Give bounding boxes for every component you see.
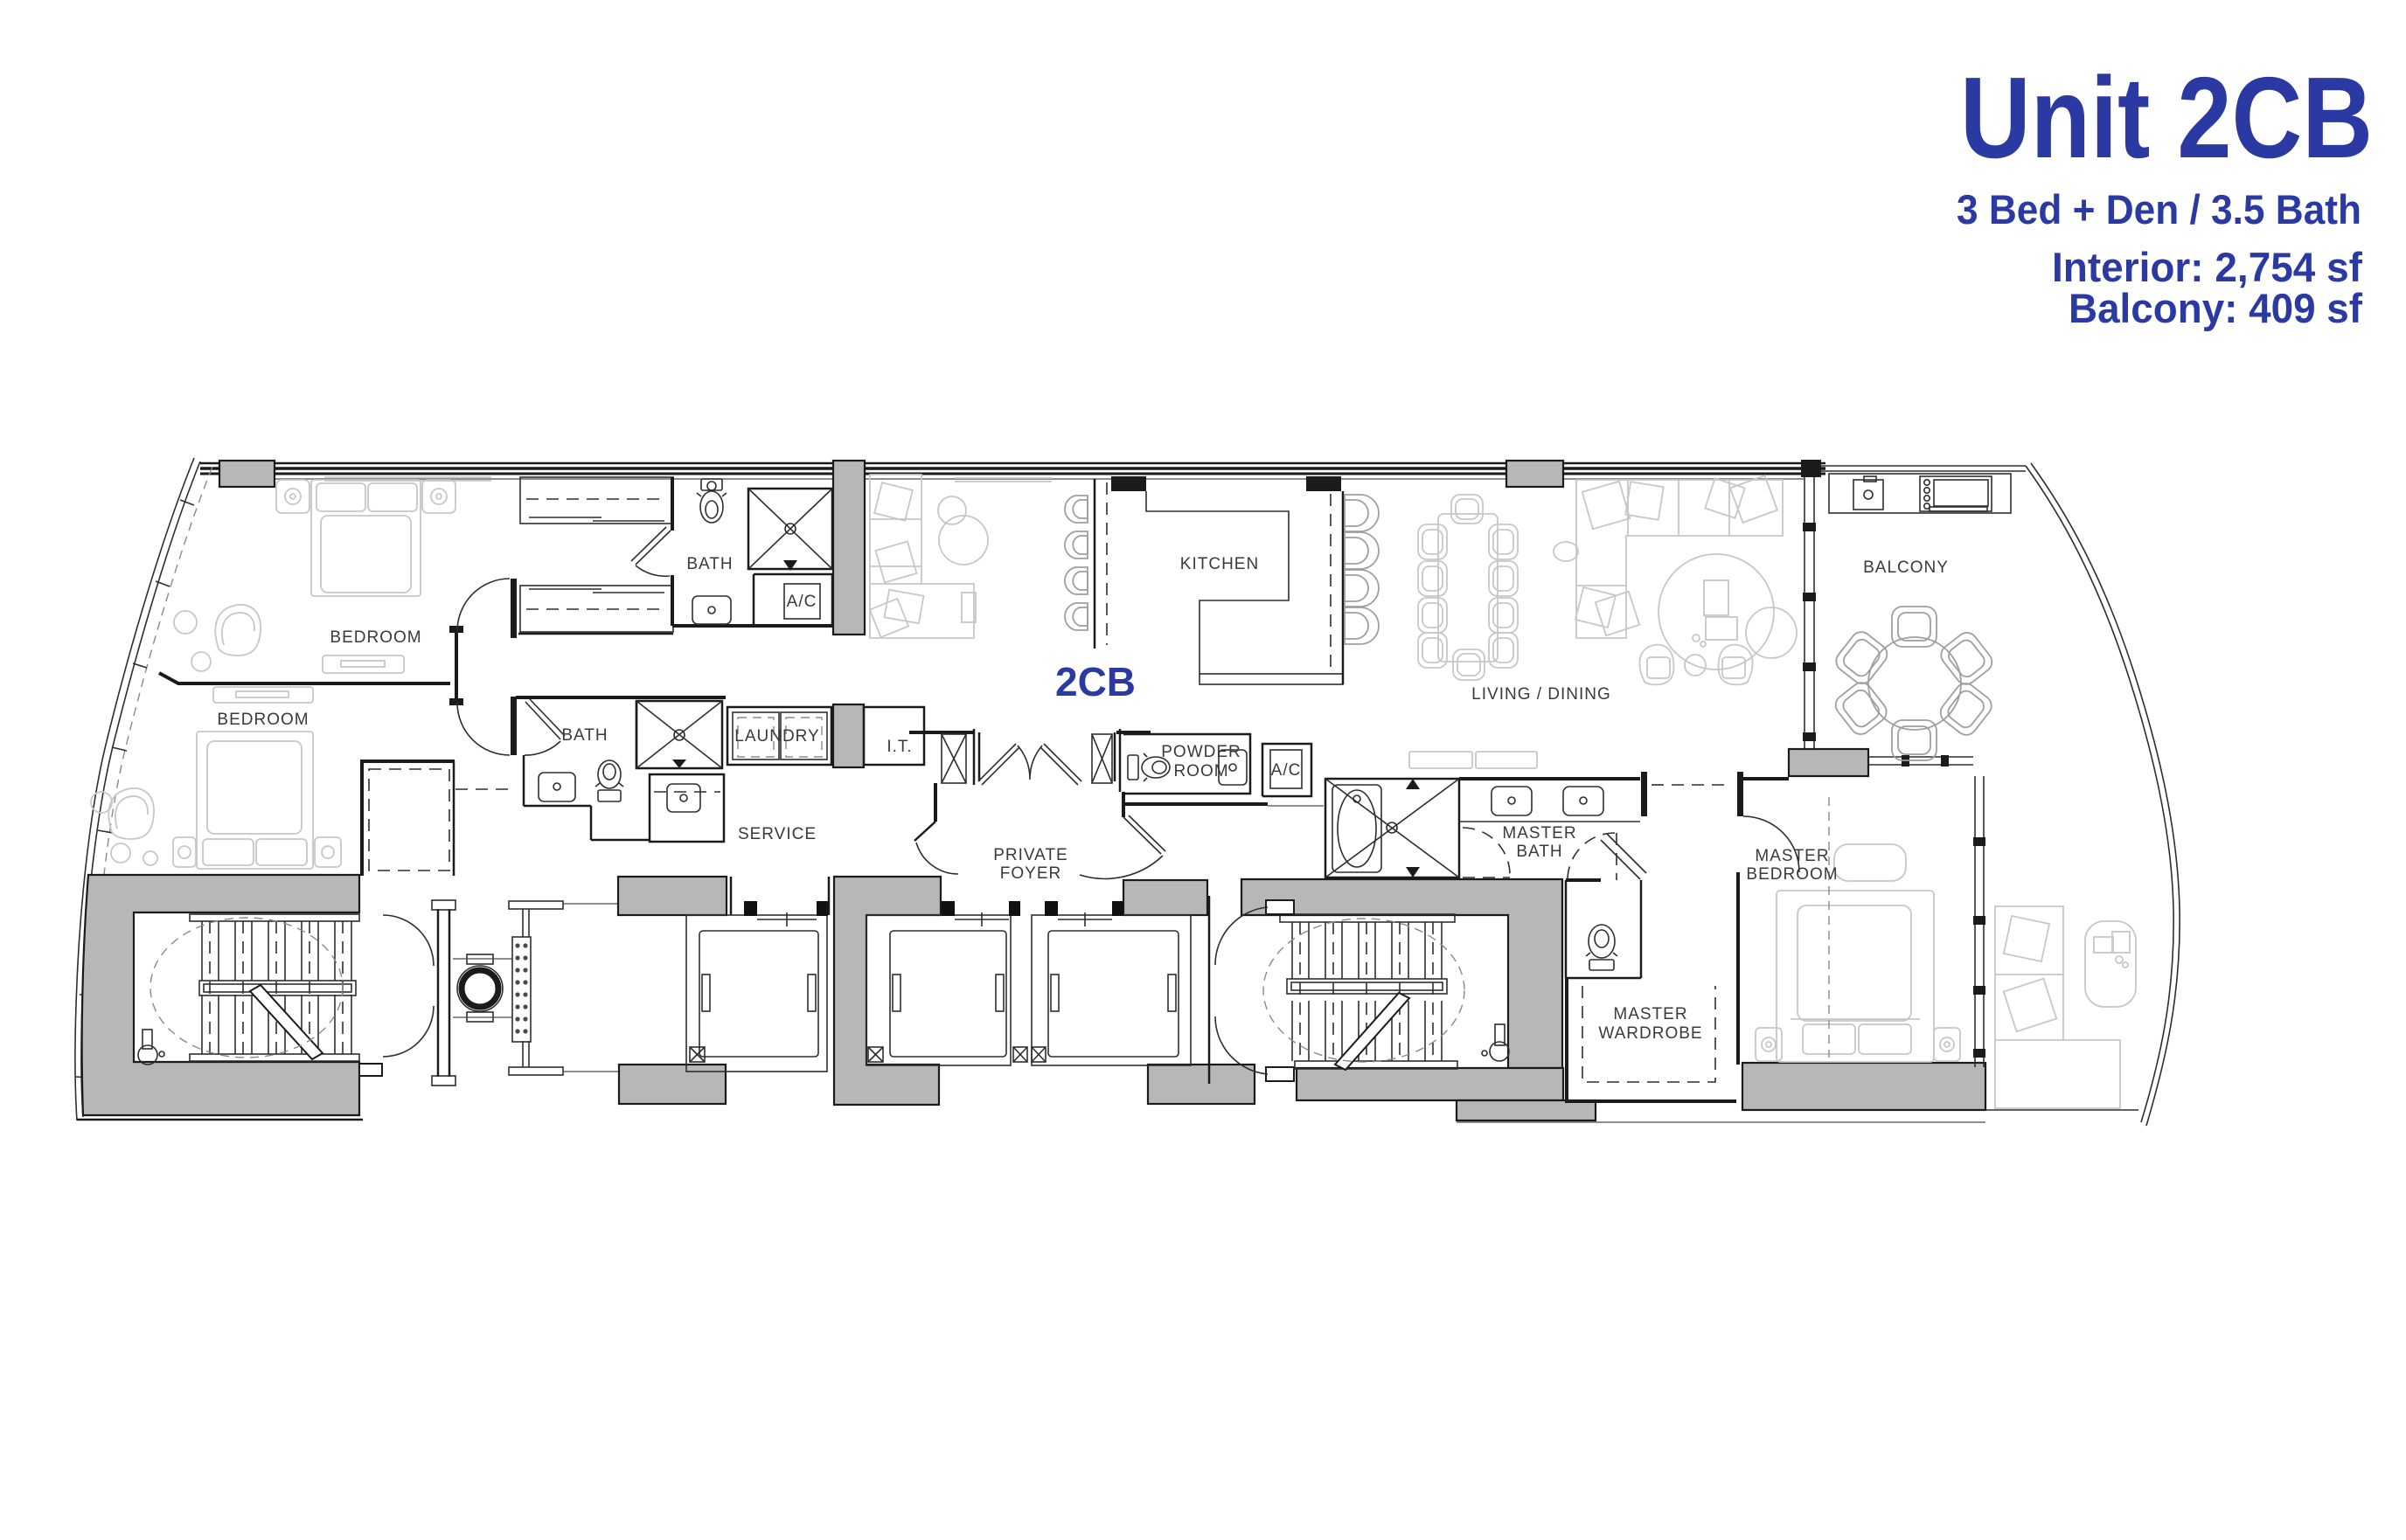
svg-text:BATH: BATH (686, 555, 733, 573)
svg-text:POWDER: POWDER (1161, 743, 1241, 761)
svg-text:Unit 2CB: Unit 2CB (1960, 53, 2373, 182)
svg-text:LIVING / DINING: LIVING / DINING (1471, 685, 1611, 704)
svg-text:Balcony: 409 sf: Balcony: 409 sf (2069, 285, 2362, 331)
svg-text:KITCHEN: KITCHEN (1180, 555, 1259, 573)
svg-text:BEDROOM: BEDROOM (1746, 865, 1838, 884)
svg-text:A/C: A/C (1271, 761, 1302, 780)
svg-text:MASTER: MASTER (1613, 1005, 1687, 1023)
svg-text:Interior: 2,754 sf: Interior: 2,754 sf (2052, 244, 2362, 290)
svg-text:BEDROOM: BEDROOM (217, 711, 309, 729)
svg-text:2CB: 2CB (1055, 659, 1136, 704)
svg-text:BEDROOM: BEDROOM (330, 628, 421, 647)
svg-text:ROOM: ROOM (1173, 762, 1228, 780)
svg-text:3 Bed + Den / 3.5 Bath: 3 Bed + Den / 3.5 Bath (1957, 186, 2361, 232)
svg-text:BALCONY: BALCONY (1863, 558, 1949, 577)
svg-text:BATH: BATH (561, 726, 608, 745)
svg-text:A/C: A/C (787, 593, 817, 611)
svg-text:PRIVATE: PRIVATE (993, 846, 1067, 864)
svg-text:SERVICE: SERVICE (738, 825, 817, 843)
svg-text:MASTER: MASTER (1755, 847, 1829, 865)
svg-text:MASTER: MASTER (1502, 824, 1576, 843)
svg-text:I.T.: I.T. (887, 738, 912, 756)
svg-text:LAUNDRY: LAUNDRY (734, 727, 819, 746)
svg-text:BATH: BATH (1516, 843, 1562, 861)
svg-text:FOYER: FOYER (1000, 864, 1061, 883)
svg-text:WARDROBE: WARDROBE (1598, 1024, 1702, 1043)
